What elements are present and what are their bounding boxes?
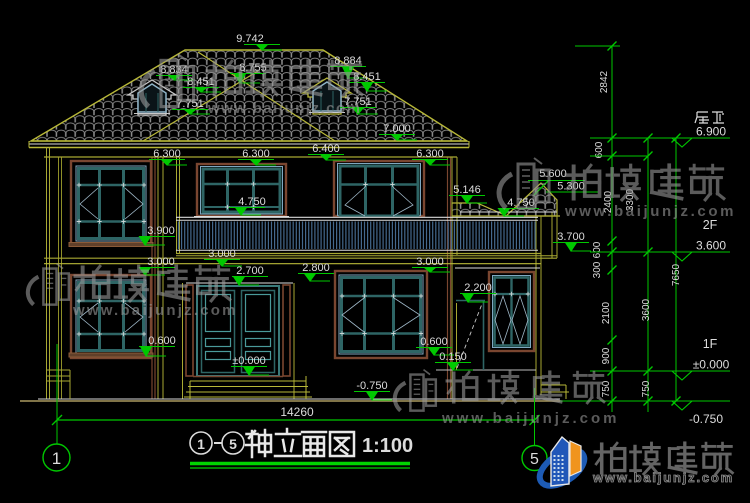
svg-text:-0.750: -0.750 <box>356 380 387 392</box>
svg-text:www.baijunjz.com: www.baijunjz.com <box>441 410 619 427</box>
svg-text:6.300: 6.300 <box>153 148 181 160</box>
svg-text:3.000: 3.000 <box>416 256 444 268</box>
svg-text:5: 5 <box>229 436 237 452</box>
svg-text:6.300: 6.300 <box>242 148 270 160</box>
svg-text:3.900: 3.900 <box>147 225 175 237</box>
svg-text:0.150: 0.150 <box>439 351 467 363</box>
svg-text:2842: 2842 <box>599 70 610 93</box>
svg-text:2.700: 2.700 <box>236 265 264 277</box>
svg-text:±0.000: ±0.000 <box>693 358 730 372</box>
svg-text:750: 750 <box>641 380 652 397</box>
svg-text:3.700: 3.700 <box>557 231 585 243</box>
svg-text:2100: 2100 <box>601 301 612 324</box>
svg-text:2F: 2F <box>703 218 718 232</box>
svg-text:www.baijunjz.com: www.baijunjz.com <box>207 100 361 117</box>
svg-text:www.baijunjz.com: www.baijunjz.com <box>592 470 734 485</box>
svg-text:600: 600 <box>592 241 603 258</box>
svg-text:1F: 1F <box>703 337 718 351</box>
svg-text:www.baijunjz.com: www.baijunjz.com <box>72 302 238 319</box>
svg-text:300: 300 <box>592 261 603 278</box>
svg-text:5.146: 5.146 <box>453 184 481 196</box>
svg-text:6.900: 6.900 <box>696 125 726 139</box>
svg-text:6.300: 6.300 <box>416 148 444 160</box>
svg-text:1: 1 <box>52 449 61 468</box>
svg-text:7650: 7650 <box>671 263 682 286</box>
svg-text:2.200: 2.200 <box>464 282 492 294</box>
svg-text:9.742: 9.742 <box>236 33 264 45</box>
svg-text:3600: 3600 <box>641 298 652 321</box>
svg-text:±0.000: ±0.000 <box>232 355 266 367</box>
svg-text:900: 900 <box>601 347 612 364</box>
svg-text:5: 5 <box>530 451 539 468</box>
svg-text:0.600: 0.600 <box>148 335 176 347</box>
svg-text:0.600: 0.600 <box>420 336 448 348</box>
svg-text:14260: 14260 <box>280 405 314 419</box>
svg-text:1:100: 1:100 <box>362 435 413 457</box>
svg-text:-0.750: -0.750 <box>689 412 723 426</box>
svg-text:7.000: 7.000 <box>383 123 411 135</box>
svg-text:3.000: 3.000 <box>147 256 175 268</box>
svg-text:3.600: 3.600 <box>696 239 726 253</box>
svg-text:www.baijunjz.com: www.baijunjz.com <box>564 203 736 220</box>
svg-text:3.000: 3.000 <box>208 248 236 260</box>
svg-text:4.750: 4.750 <box>238 196 266 208</box>
svg-text:2.800: 2.800 <box>302 262 330 274</box>
svg-text:1: 1 <box>197 436 205 452</box>
svg-text:6.400: 6.400 <box>312 143 340 155</box>
